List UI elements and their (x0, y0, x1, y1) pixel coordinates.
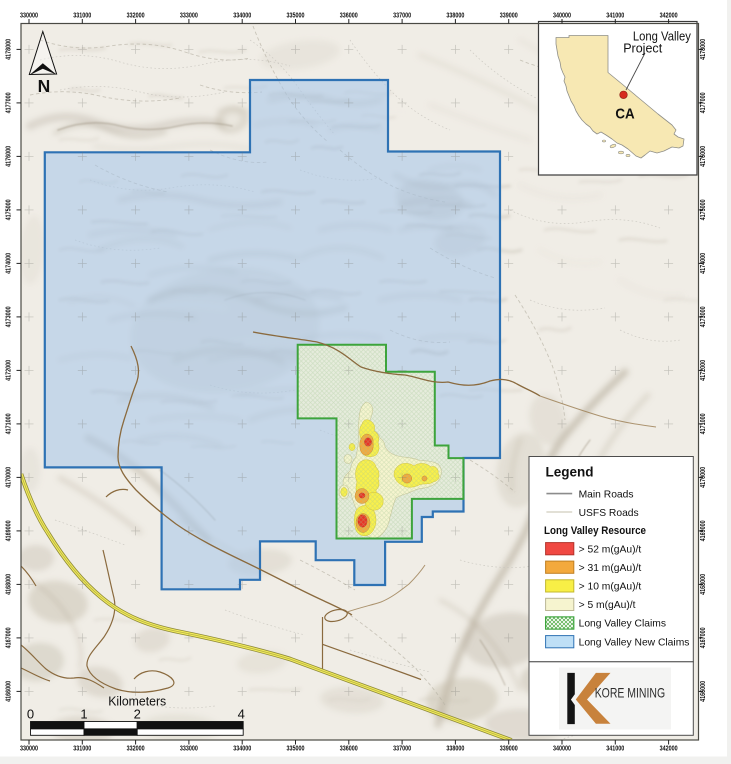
svg-text:CA: CA (615, 106, 634, 123)
svg-text:4168000: 4168000 (6, 574, 13, 595)
svg-text:337000: 337000 (393, 13, 411, 20)
svg-text:0: 0 (27, 707, 34, 722)
svg-text:4171000: 4171000 (6, 413, 13, 434)
svg-text:339000: 339000 (500, 13, 518, 20)
svg-text:Main Roads: Main Roads (579, 490, 634, 501)
svg-text:4167000: 4167000 (6, 627, 13, 648)
svg-text:340000: 340000 (553, 746, 571, 753)
svg-text:331000: 331000 (73, 13, 91, 20)
svg-text:341000: 341000 (606, 13, 624, 20)
svg-text:335000: 335000 (287, 746, 305, 753)
svg-text:KORE MINING: KORE MINING (595, 685, 665, 701)
svg-text:Long Valley New Claims: Long Valley New Claims (579, 637, 690, 648)
svg-text:Legend: Legend (546, 465, 594, 480)
svg-text:> 52 m(gAu)/t: > 52 m(gAu)/t (579, 544, 642, 555)
svg-text:4177000: 4177000 (700, 92, 707, 113)
svg-text:340000: 340000 (553, 13, 571, 20)
svg-text:332000: 332000 (127, 746, 145, 753)
svg-text:338000: 338000 (446, 13, 464, 20)
svg-text:4168000: 4168000 (700, 574, 707, 595)
svg-text:4173000: 4173000 (700, 306, 707, 327)
svg-text:USFS Roads: USFS Roads (579, 508, 639, 519)
svg-text:4166000: 4166000 (700, 681, 707, 702)
svg-text:4176000: 4176000 (700, 146, 707, 167)
svg-text:4166000: 4166000 (6, 681, 13, 702)
svg-text:331000: 331000 (73, 746, 91, 753)
svg-text:4172000: 4172000 (6, 360, 13, 381)
svg-text:4173000: 4173000 (6, 306, 13, 327)
svg-text:Project: Project (623, 41, 662, 56)
svg-text:4175000: 4175000 (6, 199, 13, 220)
svg-text:4167000: 4167000 (700, 627, 707, 648)
svg-text:330000: 330000 (20, 13, 38, 20)
svg-text:4174000: 4174000 (700, 253, 707, 274)
svg-text:4174000: 4174000 (6, 253, 13, 274)
svg-text:332000: 332000 (127, 13, 145, 20)
svg-text:4178000: 4178000 (6, 39, 13, 60)
svg-text:2: 2 (134, 707, 141, 722)
svg-text:341000: 341000 (606, 746, 624, 753)
svg-text:4169000: 4169000 (6, 520, 13, 541)
svg-text:4171000: 4171000 (700, 413, 707, 434)
svg-text:4178000: 4178000 (700, 39, 707, 60)
svg-text:342000: 342000 (660, 746, 678, 753)
svg-text:4169000: 4169000 (700, 520, 707, 541)
svg-text:> 10 m(gAu)/t: > 10 m(gAu)/t (579, 582, 642, 593)
svg-text:337000: 337000 (393, 746, 411, 753)
svg-text:> 5 m(gAu)/t: > 5 m(gAu)/t (579, 600, 636, 611)
svg-text:334000: 334000 (233, 746, 251, 753)
svg-text:336000: 336000 (340, 746, 358, 753)
svg-text:333000: 333000 (180, 13, 198, 20)
svg-text:4175000: 4175000 (700, 199, 707, 220)
svg-text:330000: 330000 (20, 746, 38, 753)
svg-text:4: 4 (238, 707, 245, 722)
svg-text:333000: 333000 (180, 746, 198, 753)
svg-text:4177000: 4177000 (6, 92, 13, 113)
svg-text:N: N (38, 76, 51, 96)
svg-text:338000: 338000 (446, 746, 464, 753)
svg-text:4176000: 4176000 (6, 146, 13, 167)
svg-text:4170000: 4170000 (6, 467, 13, 488)
svg-text:Long Valley Resource: Long Valley Resource (544, 525, 646, 537)
svg-text:342000: 342000 (660, 13, 678, 20)
svg-text:334000: 334000 (233, 13, 251, 20)
svg-text:Long Valley Claims: Long Valley Claims (579, 619, 666, 630)
svg-text:4170000: 4170000 (700, 467, 707, 488)
svg-text:336000: 336000 (340, 13, 358, 20)
svg-text:1: 1 (80, 707, 87, 722)
svg-text:> 31 m(gAu)/t: > 31 m(gAu)/t (579, 563, 642, 574)
svg-text:4172000: 4172000 (700, 360, 707, 381)
svg-text:335000: 335000 (287, 13, 305, 20)
svg-text:339000: 339000 (500, 746, 518, 753)
